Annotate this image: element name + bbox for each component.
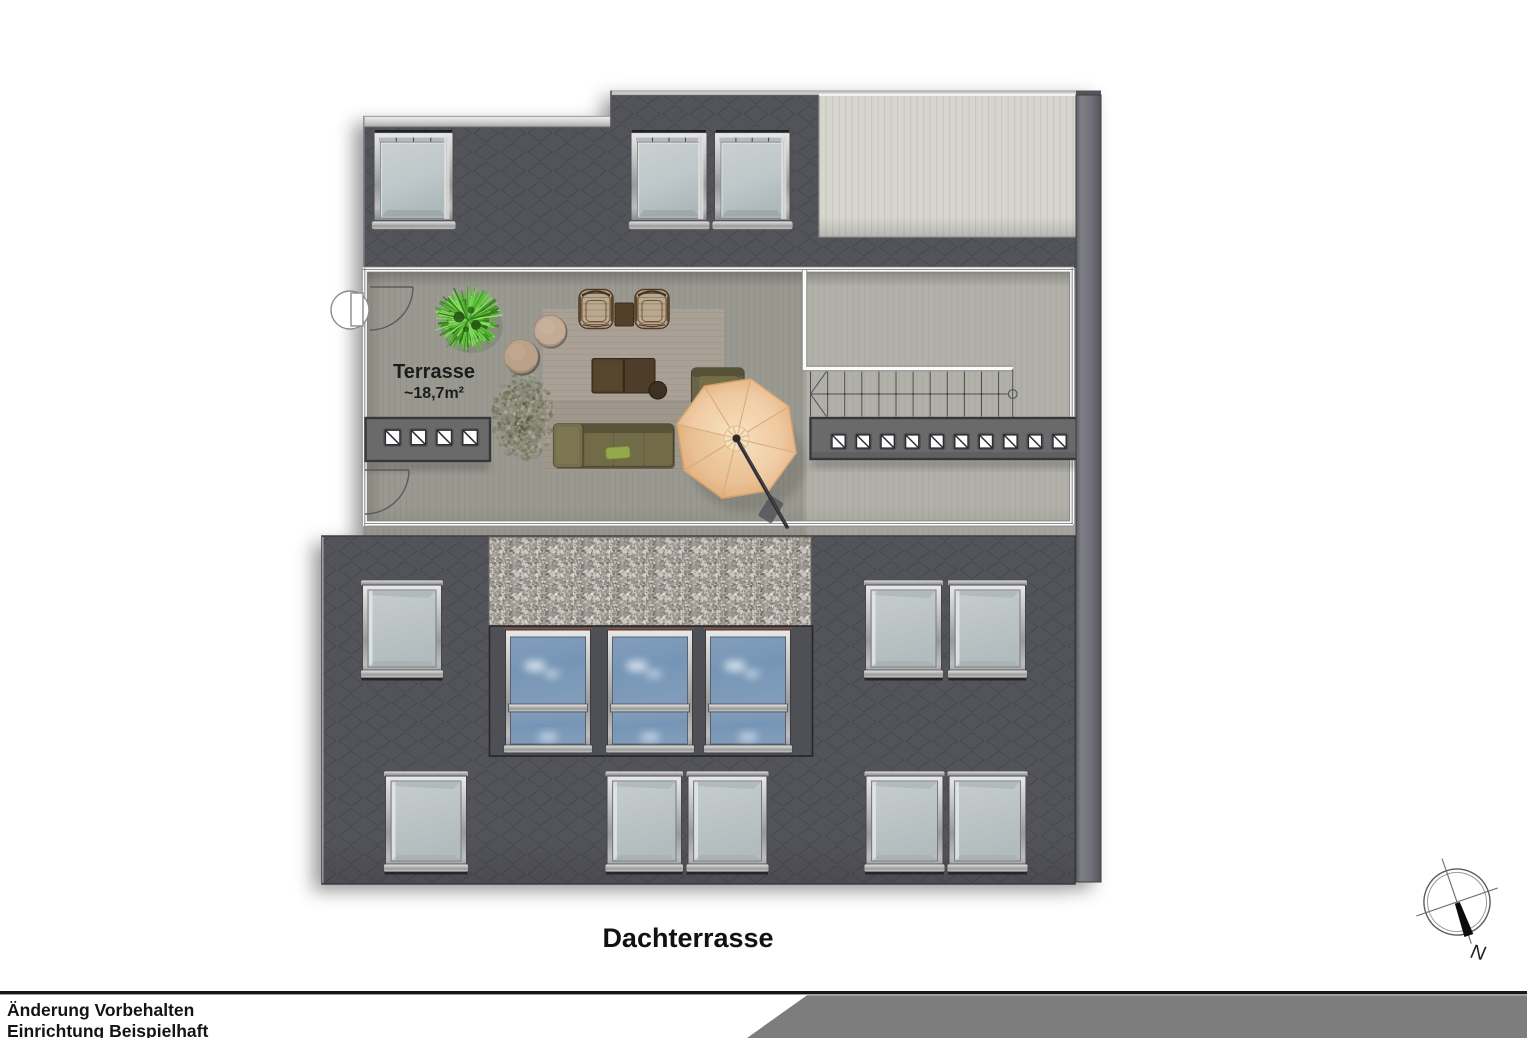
svg-text:Änderung Vorbehalten: Änderung Vorbehalten [7, 1000, 194, 1020]
svg-text:Terrasse: Terrasse [393, 361, 475, 383]
svg-text:N: N [1469, 941, 1488, 966]
svg-text:Dachterrasse: Dachterrasse [602, 923, 773, 953]
svg-text:~18,7m²: ~18,7m² [404, 385, 464, 402]
svg-text:Einrichtung Beispielhaft: Einrichtung Beispielhaft [7, 1021, 208, 1038]
